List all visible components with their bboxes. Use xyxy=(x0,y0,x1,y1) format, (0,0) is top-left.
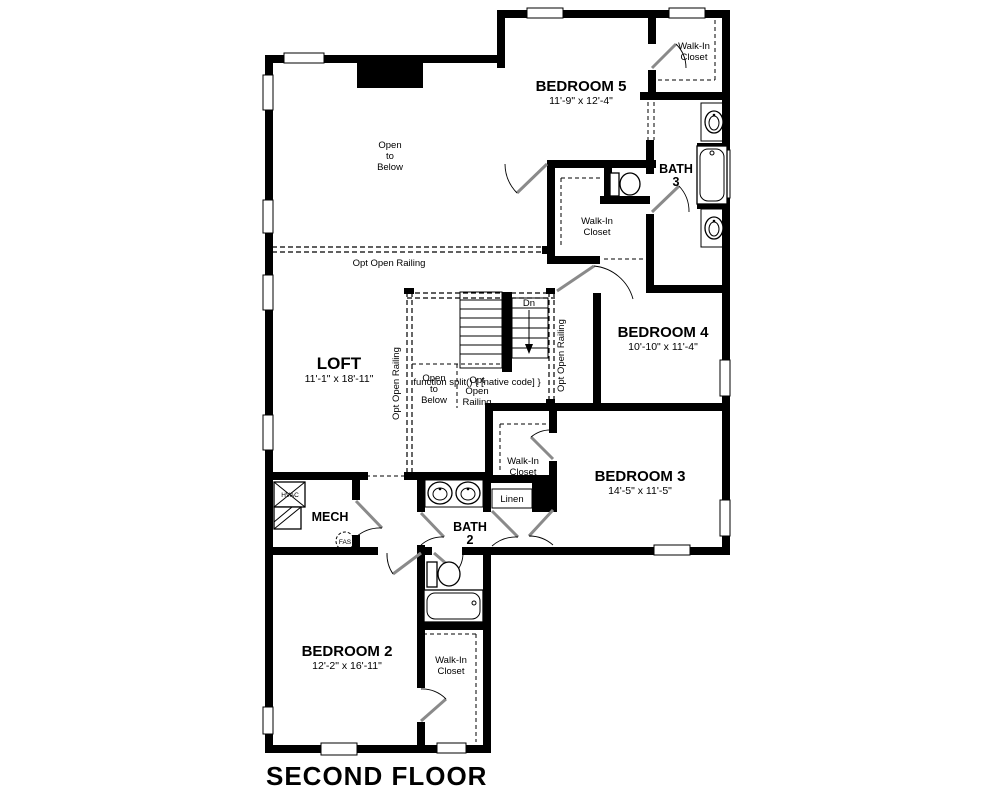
door-mech xyxy=(356,501,382,537)
fireplace-chase xyxy=(357,60,423,88)
room-label-bath3: BATH xyxy=(659,162,693,176)
floor-plan-drawing: Open to Below Opt Open Railing BEDROOM 5… xyxy=(0,0,1000,800)
toilet-icon-bath3 xyxy=(610,173,640,196)
stair-divider-wall xyxy=(502,292,512,372)
door-bath2 xyxy=(421,513,444,545)
return-chase-icon xyxy=(274,507,301,529)
door-bedroom3-closet xyxy=(531,430,553,459)
walk-in-closet-label-hall: Walk-In xyxy=(581,216,613,227)
walk-in-closet-label-br5: Walk-In xyxy=(678,41,710,52)
room-dims-bedroom2: 12'-2" x 16'-11" xyxy=(312,660,382,672)
room-label-bedroom3: BEDROOM 3 xyxy=(595,468,686,485)
door-bedroom2-closet xyxy=(421,689,446,721)
door-hall xyxy=(492,511,518,546)
svg-text:Opt: Opt xyxy=(469,375,485,386)
linen-wall-chunk xyxy=(532,483,557,512)
sink-icon-bath2-left xyxy=(428,482,452,504)
room-label-loft: LOFT xyxy=(317,354,362,373)
svg-text:Closet: Closet xyxy=(438,666,465,677)
linen-label: Linen xyxy=(500,494,523,505)
room-dims-bedroom3: 14'-5" x 11'-5" xyxy=(608,485,672,497)
opt-open-railing-label-hall: Opt Open Railing xyxy=(353,258,426,269)
svg-text:Open: Open xyxy=(465,386,488,397)
room-dims-bedroom5: 11'-9" x 12'-4" xyxy=(549,95,613,107)
sink-icon-bath2-right xyxy=(456,482,480,504)
svg-text:Closet: Closet xyxy=(584,227,611,238)
room-label-bath2: BATH xyxy=(453,520,487,534)
room-dims-loft: 11'-1" x 18'-11" xyxy=(305,373,374,385)
room-label-mech: MECH xyxy=(312,510,349,524)
room-label-bedroom2: BEDROOM 2 xyxy=(302,643,393,660)
floor-plan-page: Open to Below Opt Open Railing BEDROOM 5… xyxy=(0,0,1000,800)
opt-open-railing-label-right: Opt Open Railing xyxy=(556,319,567,392)
open-railings xyxy=(272,247,555,478)
room-number-bath3: 3 xyxy=(673,175,680,189)
walk-in-closet-label-br2: Walk-In xyxy=(435,655,467,666)
opt-open-railing-label-left: Opt Open Railing xyxy=(391,347,402,420)
walk-in-closet-label-br3: Walk-In xyxy=(507,456,539,467)
svg-text:Below: Below xyxy=(421,395,447,406)
svg-text:Railing: Railing xyxy=(462,397,491,408)
room-label-bedroom5: BEDROOM 5 xyxy=(536,78,627,95)
page-title: SECOND FLOOR xyxy=(266,761,487,791)
room-dims-bedroom4: 10'-10" x 11'-4" xyxy=(628,341,698,353)
svg-text:Closet: Closet xyxy=(510,467,537,478)
door-bedroom3 xyxy=(529,510,553,545)
stair-dn-label: Dn xyxy=(523,298,535,309)
svg-text:to: to xyxy=(386,151,394,162)
svg-text:Below: Below xyxy=(377,162,403,173)
door-bedroom2 xyxy=(387,553,421,574)
toilet-icon-bath2 xyxy=(427,562,460,587)
bathtub-icon-bath2 xyxy=(424,590,483,622)
room-number-bath2: 2 xyxy=(467,533,474,547)
stair-down-arrow xyxy=(525,310,533,354)
door-bedroom5 xyxy=(505,164,547,193)
room-label-bedroom4: BEDROOM 4 xyxy=(618,324,710,341)
open-to-below-label: Open xyxy=(378,140,401,151)
door-bath3 xyxy=(652,186,689,212)
bathtub-icon-bath3 xyxy=(697,146,727,204)
fas-label: FAS xyxy=(339,539,352,546)
vanity-bath2 xyxy=(425,480,483,507)
hvac-label: HVAC xyxy=(281,492,299,499)
svg-text:Closet: Closet xyxy=(681,52,708,63)
